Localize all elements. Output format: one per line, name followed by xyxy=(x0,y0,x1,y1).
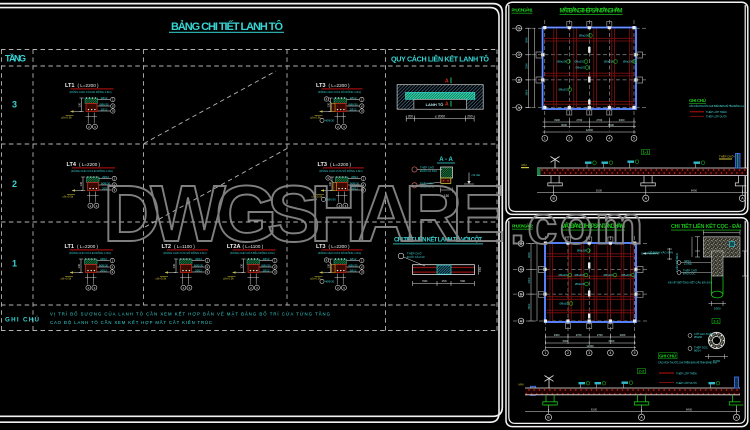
svg-text:LT4: LT4 xyxy=(66,162,76,168)
svg-text:150: 150 xyxy=(441,279,446,283)
svg-text:GHI CHÚ: GHI CHÚ xyxy=(689,97,707,103)
svg-text:200: 200 xyxy=(408,115,414,119)
svg-text:2: 2 xyxy=(568,137,570,141)
svg-text:Ø8a200: Ø8a200 xyxy=(579,34,589,38)
svg-text:2700: 2700 xyxy=(576,118,582,122)
svg-text:C: C xyxy=(520,268,523,272)
svg-text:Ø8a200: Ø8a200 xyxy=(576,66,586,70)
svg-text:A: A xyxy=(445,78,449,84)
svg-text:4: 4 xyxy=(608,137,610,141)
svg-text:≤ 2000: ≤ 2000 xyxy=(435,115,445,119)
svg-text:Ø6a50: Ø6a50 xyxy=(694,335,703,339)
svg-text:L=700: L=700 xyxy=(684,262,692,266)
svg-text:500: 500 xyxy=(460,279,465,283)
svg-text:QUY CÁCH LIÊN KẾT LANH TÔ: QUY CÁCH LIÊN KẾT LANH TÔ xyxy=(391,54,489,64)
svg-text:3300: 3300 xyxy=(619,118,625,122)
svg-text:3600: 3600 xyxy=(525,37,529,43)
svg-text:LT1: LT1 xyxy=(64,244,74,250)
svg-text:5: 5 xyxy=(633,137,635,141)
svg-text:1-1: 1-1 xyxy=(713,319,720,324)
svg-text:500: 500 xyxy=(422,279,427,283)
svg-text:LANH TÔ: LANH TÔ xyxy=(426,102,444,107)
svg-text:MÁI: MÁI xyxy=(519,383,524,387)
svg-text:2700: 2700 xyxy=(597,333,603,337)
svg-text:8100: 8100 xyxy=(591,407,598,411)
svg-text:Ø8a200: Ø8a200 xyxy=(559,273,569,277)
svg-text:PHƯƠNG ÁN 1: PHƯƠNG ÁN 1 xyxy=(512,7,533,13)
svg-text:C: C xyxy=(517,53,520,57)
svg-text:MÁI: MÁI xyxy=(522,163,527,167)
svg-text:8400: 8400 xyxy=(686,407,693,411)
svg-text:Ø8a200: Ø8a200 xyxy=(623,60,633,64)
svg-text:3600: 3600 xyxy=(525,89,529,95)
svg-text:3300: 3300 xyxy=(554,118,560,122)
svg-text:THÉP MÔMEN: THÉP MÔMEN xyxy=(674,253,679,272)
svg-text:VỊ TRÍ BỐ SƯƠNG CỦA LANH TÔ CẦ: VỊ TRÍ BỐ SƯƠNG CỦA LANH TÔ CẦN XEM KẾT … xyxy=(50,312,331,317)
svg-text:CHI TIẾT LIÊN KẾT CỌC - ĐÀI: CHI TIẾT LIÊN KẾT CỌC - ĐÀI xyxy=(671,222,742,230)
svg-text:DWGSHARE: DWGSHARE xyxy=(103,169,505,258)
svg-text:6000: 6000 xyxy=(563,339,569,343)
svg-text:LT3: LT3 xyxy=(317,162,327,168)
svg-text:6000: 6000 xyxy=(561,123,567,127)
svg-text:GHI CHÚ: GHI CHÚ xyxy=(659,353,677,359)
svg-text:12000: 12000 xyxy=(586,128,594,132)
svg-text:A: A xyxy=(445,102,449,108)
svg-text:8100: 8100 xyxy=(596,188,603,192)
svg-text:3: 3 xyxy=(588,351,590,355)
svg-text:D: D xyxy=(517,27,520,31)
svg-text:( L=2200 ): ( L=2200 ) xyxy=(78,83,100,88)
svg-text:GHI CHÚ: GHI CHÚ xyxy=(5,317,40,324)
svg-text:3300: 3300 xyxy=(527,277,531,283)
svg-text:Ø8a200: Ø8a200 xyxy=(559,88,569,92)
svg-text:Ø8a200: Ø8a200 xyxy=(575,273,585,277)
svg-text:3: 3 xyxy=(12,100,17,110)
svg-text:BẢNG CHI TIẾT LANH TÔ: BẢNG CHI TIẾT LANH TÔ xyxy=(171,20,283,33)
svg-text:3300: 3300 xyxy=(525,63,529,69)
svg-text:Ø8a200: Ø8a200 xyxy=(604,273,614,277)
svg-text:2: 2 xyxy=(567,351,569,355)
svg-text:Ø8a200: Ø8a200 xyxy=(604,60,614,64)
svg-text:.com: .com xyxy=(510,196,643,256)
svg-text:1: 1 xyxy=(12,259,17,269)
svg-text:4: 4 xyxy=(609,351,611,355)
svg-text:MẬT BẰNG THÉP SÀN TẦNG HẦM: MẬT BẰNG THÉP SÀN TẦNG HẦM xyxy=(560,7,623,15)
svg-text:CAO ĐỘ LANH TÔ CẦN XEM KẾT HỢP: CAO ĐỘ LANH TÔ CẦN XEM KẾT HỢP MẰT CẮT K… xyxy=(50,320,212,325)
svg-text:1: 1 xyxy=(544,351,546,355)
svg-text:TẦNG: TẦNG xyxy=(5,54,26,64)
svg-text:LT3: LT3 xyxy=(316,83,326,89)
svg-text:Ø8a200: Ø8a200 xyxy=(575,282,585,286)
svg-text:( L=2200 ): ( L=2200 ) xyxy=(79,162,101,167)
svg-text:3300: 3300 xyxy=(554,333,560,337)
svg-text:Ø8a200: Ø8a200 xyxy=(622,273,632,277)
svg-text:6000: 6000 xyxy=(608,123,614,127)
svg-text:12000: 12000 xyxy=(586,344,594,348)
svg-text:2700: 2700 xyxy=(576,333,582,337)
svg-text:5: 5 xyxy=(634,351,636,355)
svg-text:D300: D300 xyxy=(714,307,721,311)
svg-text:( L=2200 ): ( L=2200 ) xyxy=(77,244,99,249)
svg-text:2-2: 2-2 xyxy=(639,369,646,374)
svg-text:3: 3 xyxy=(588,137,590,141)
svg-text:LT1: LT1 xyxy=(65,83,75,89)
svg-text:1: 1 xyxy=(544,137,546,141)
svg-text:A - A: A - A xyxy=(439,157,453,163)
svg-text:200: 200 xyxy=(467,115,473,119)
svg-text:Ø8a200: Ø8a200 xyxy=(560,302,570,306)
svg-text:1-1: 1-1 xyxy=(642,150,649,155)
svg-text:8400: 8400 xyxy=(691,188,698,192)
svg-text:3300: 3300 xyxy=(620,333,626,337)
svg-text:6000: 6000 xyxy=(609,339,615,343)
svg-text:8Ø14: 8Ø14 xyxy=(694,349,701,353)
svg-text:( L=2200 ): ( L=2200 ) xyxy=(330,162,352,167)
svg-text:2700: 2700 xyxy=(596,118,602,122)
svg-text:Ø8a200: Ø8a200 xyxy=(557,60,567,64)
svg-text:2: 2 xyxy=(12,179,17,189)
svg-text:3600: 3600 xyxy=(527,303,531,309)
svg-text:Ø8a200: Ø8a200 xyxy=(575,60,585,64)
svg-text:150: 150 xyxy=(478,267,482,272)
svg-text:( L=2200 ): ( L=2200 ) xyxy=(329,83,351,88)
